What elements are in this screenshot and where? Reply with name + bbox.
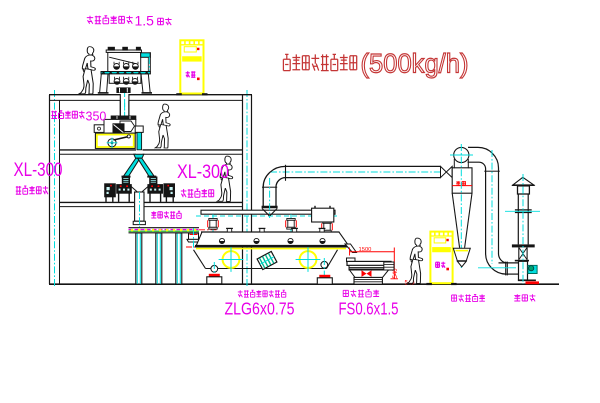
svg-text:1.5: 1.5 bbox=[135, 13, 155, 29]
svg-text:XL-300: XL-300 bbox=[14, 160, 63, 181]
svg-text:FS0.6x1.5: FS0.6x1.5 bbox=[339, 299, 399, 319]
svg-text:350: 350 bbox=[86, 110, 107, 124]
svg-text:1500: 1500 bbox=[359, 247, 372, 253]
svg-text:XL-300: XL-300 bbox=[177, 162, 229, 183]
svg-text:(500kg/h): (500kg/h) bbox=[361, 49, 469, 79]
svg-text:ZLG6x0.75: ZLG6x0.75 bbox=[225, 299, 295, 319]
